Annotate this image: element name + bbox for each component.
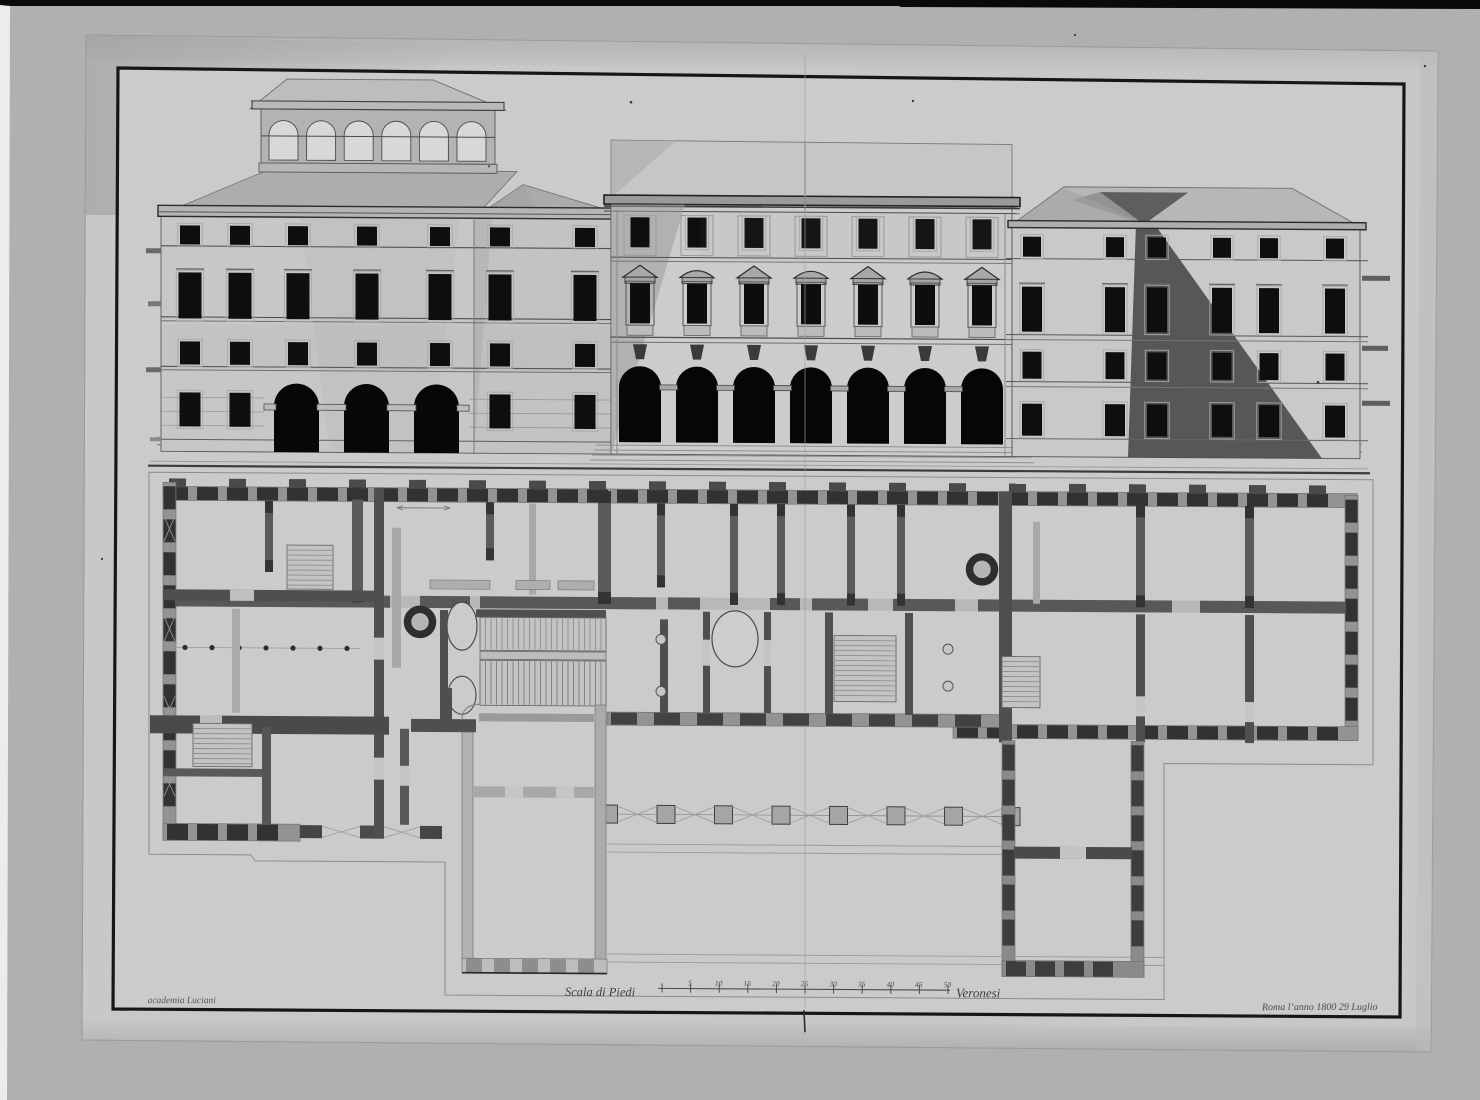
- svg-text:50: 50: [944, 980, 952, 989]
- svg-text:35: 35: [857, 980, 866, 989]
- svg-text:25: 25: [801, 979, 809, 988]
- svg-text:15: 15: [743, 979, 751, 988]
- svg-text:45: 45: [915, 980, 923, 989]
- svg-text:5: 5: [688, 979, 692, 988]
- svg-text:Veronesi: Veronesi: [956, 985, 1001, 1000]
- svg-text:10: 10: [715, 979, 723, 988]
- svg-text:academia Luciani: academia Luciani: [146, 996, 216, 1006]
- svg-text:30: 30: [828, 979, 837, 988]
- svg-text:Scala di Piedi: Scala di Piedi: [565, 985, 636, 999]
- svg-text:Roma l’anno 1800 29 Luglio: Roma l’anno 1800 29 Luglio: [1261, 1002, 1378, 1013]
- svg-text:40: 40: [886, 980, 894, 989]
- svg-text:20: 20: [772, 979, 780, 988]
